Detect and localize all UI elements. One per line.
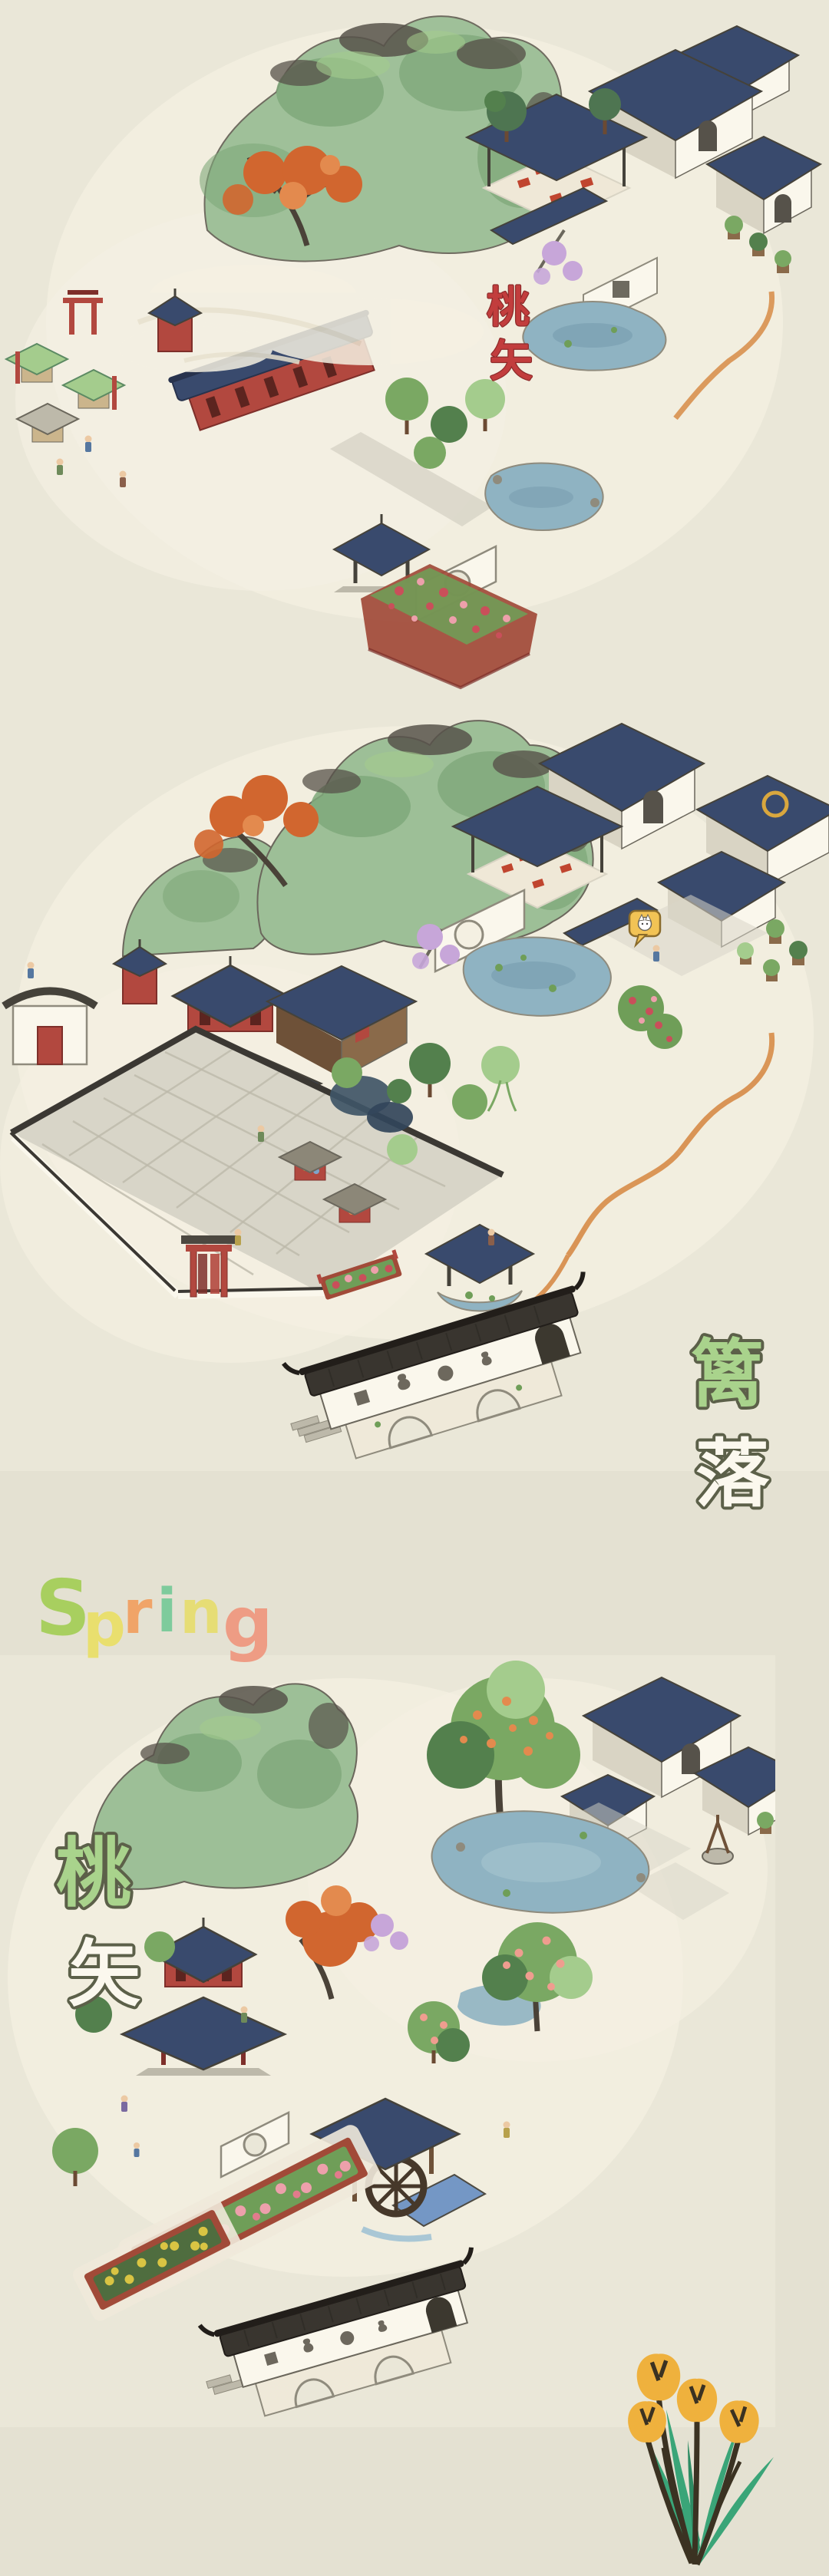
label-char: 落 (695, 1431, 770, 1517)
spring-letter: g (223, 1582, 267, 1664)
spring-letter: p (83, 1591, 126, 1660)
panel-autumn-scene (0, 0, 829, 703)
spring-scene-art (0, 1655, 775, 2427)
label-char: 矢 (490, 337, 533, 387)
lower-pond (485, 463, 603, 531)
spring-letter: i (157, 1577, 177, 1646)
panel-spring-scene (0, 1655, 775, 2427)
label-taoshi-red: 桃 矢 (459, 273, 563, 404)
tulip-illustration (599, 2325, 829, 2576)
spring-letter: r (123, 1578, 153, 1648)
label-liluo: 篱 落 (674, 1321, 800, 1552)
autumn-scene-art (0, 0, 829, 703)
spring-heading: S p r i n g (6, 1544, 267, 1674)
label-char: 桃 (487, 283, 530, 333)
label-char: 篱 (691, 1331, 765, 1417)
label-char: 矢 (68, 1933, 140, 2017)
game-screenshot-collage: { "palette": { "page_bg":"#e4e1d2","pane… (0, 0, 829, 2576)
label-taoshi-green: 桃 矢 (38, 1815, 184, 2037)
tulip-flowers (628, 2353, 759, 2442)
label-char: 桃 (56, 1830, 131, 1918)
spring-letter: n (180, 1578, 223, 1648)
